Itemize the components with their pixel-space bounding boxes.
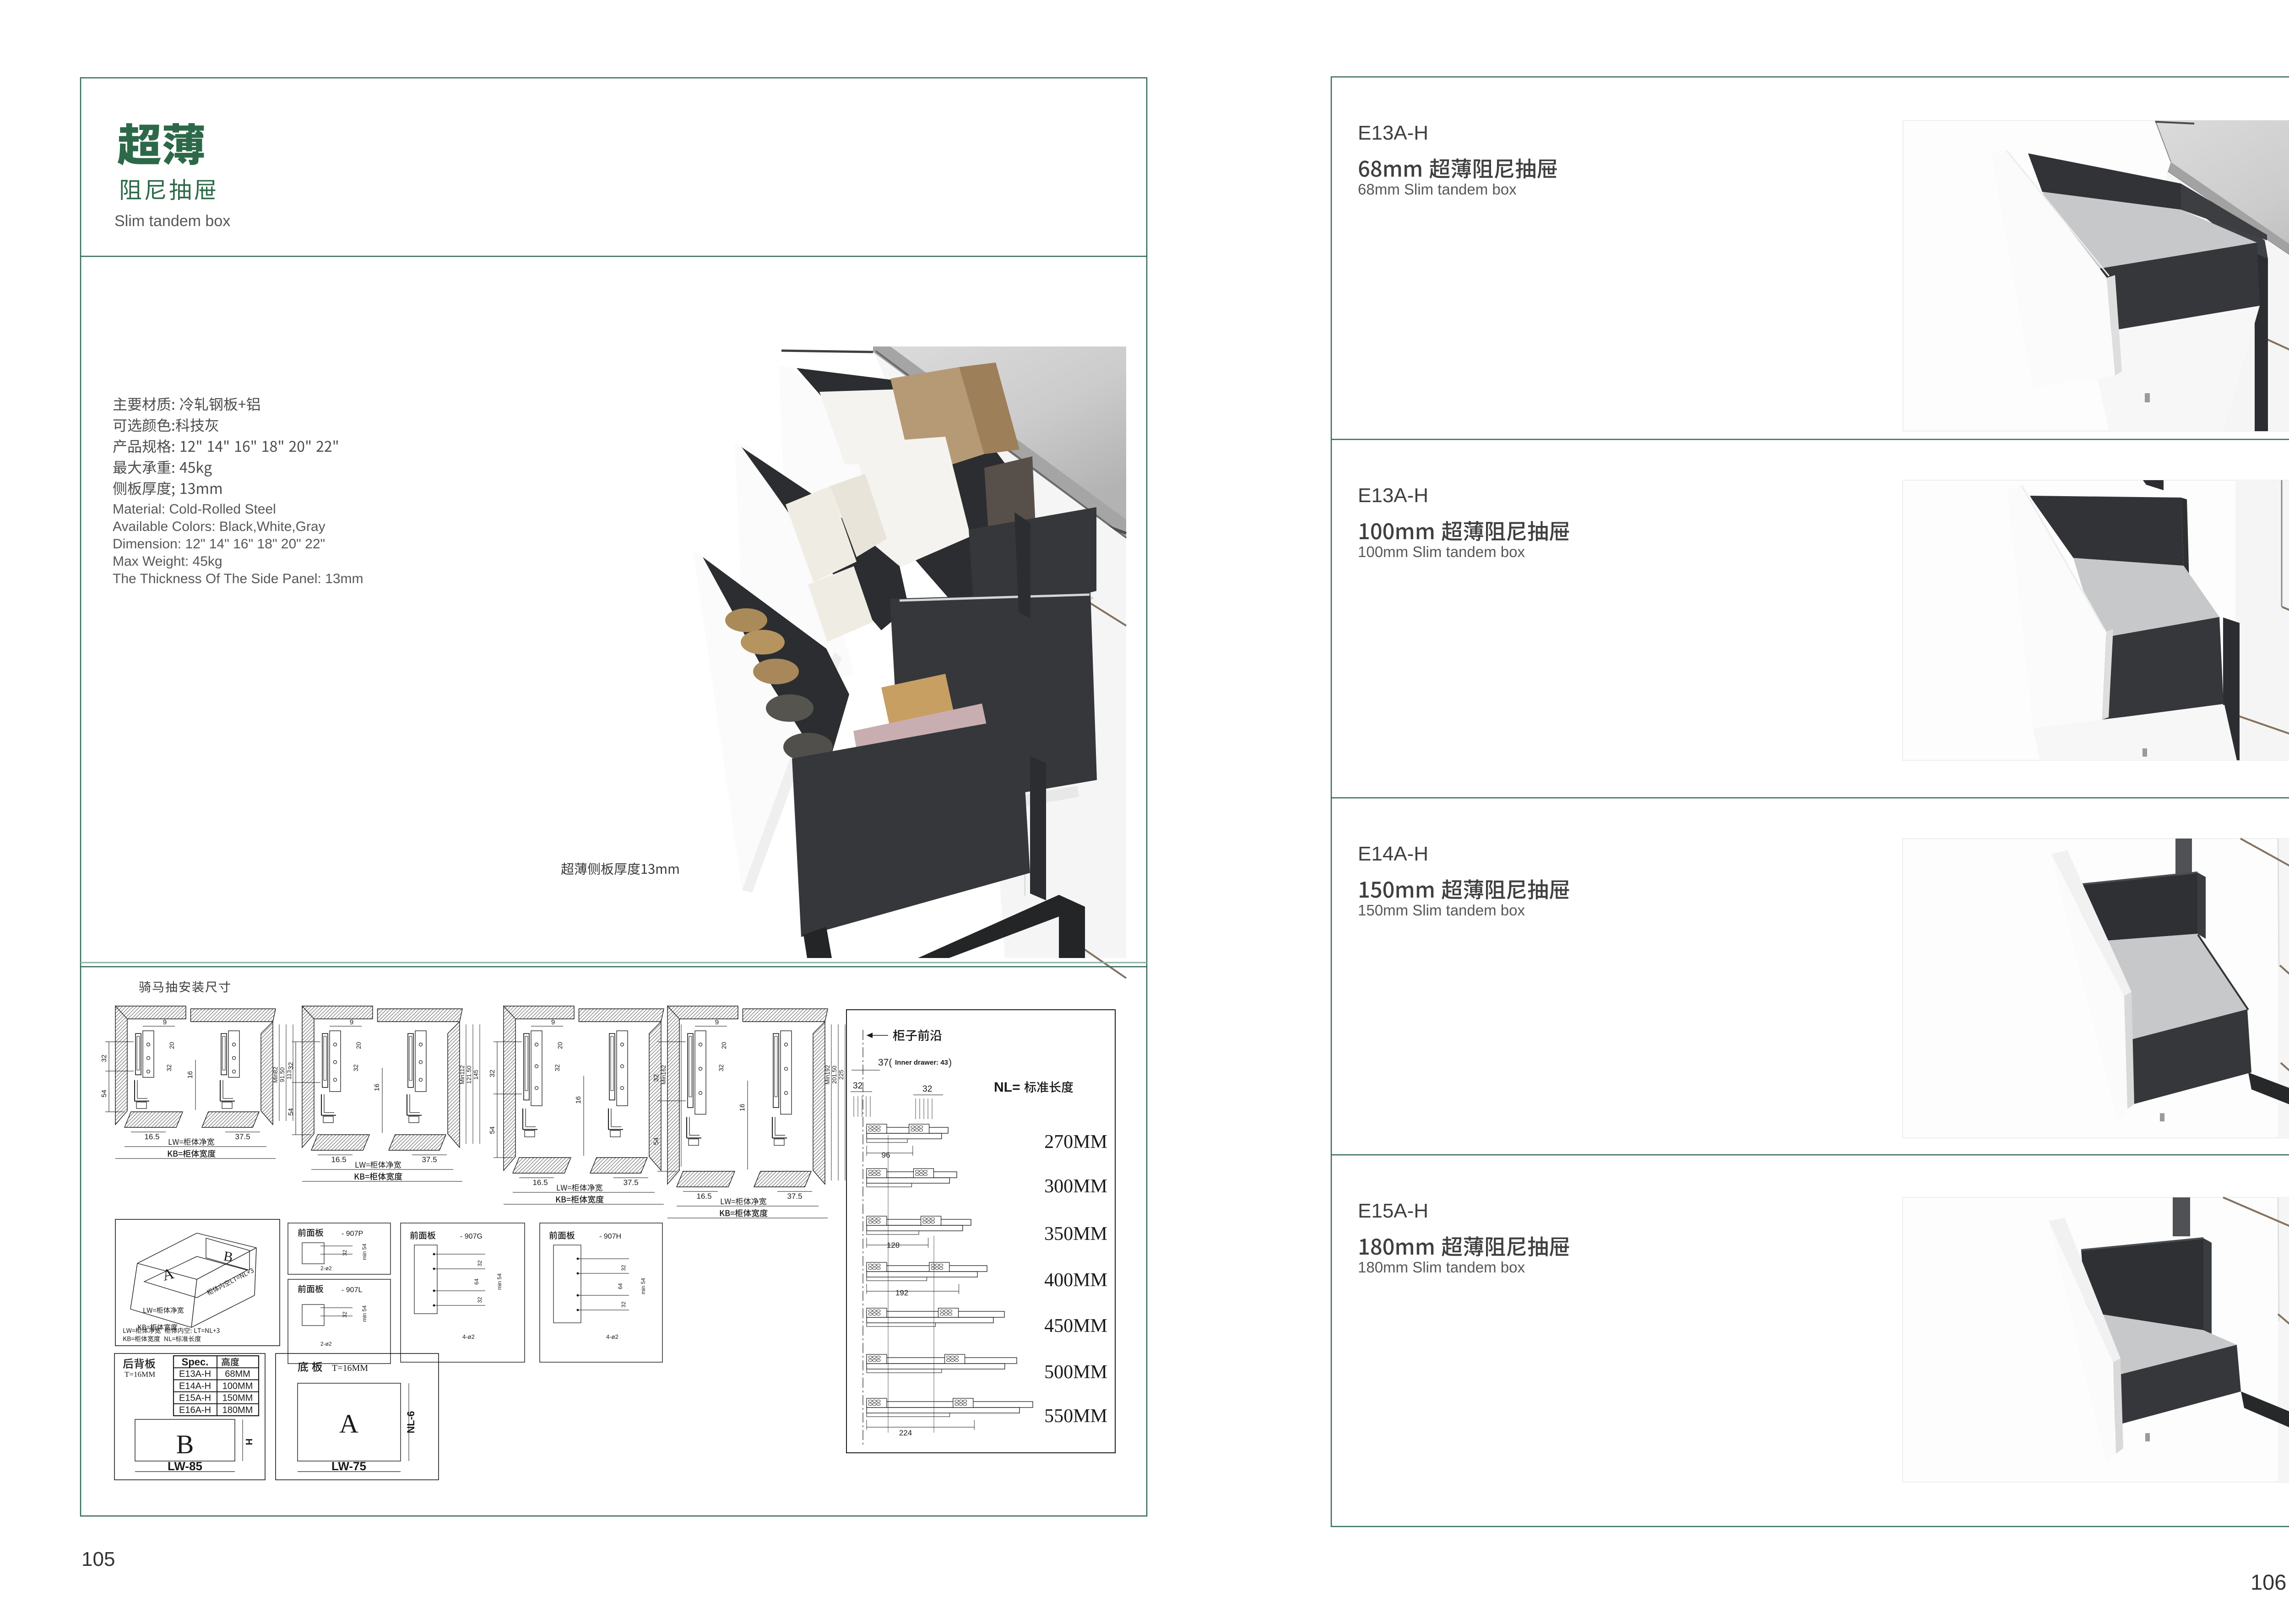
svg-text:145: 145 xyxy=(472,1070,479,1080)
svg-text:T=16MM: T=16MM xyxy=(125,1370,155,1379)
svg-text:16.5: 16.5 xyxy=(532,1178,548,1187)
svg-text:16: 16 xyxy=(738,1104,746,1111)
svg-text:32: 32 xyxy=(100,1055,108,1062)
svg-text:E13A-H: E13A-H xyxy=(179,1369,211,1379)
svg-text:32: 32 xyxy=(477,1297,483,1303)
svg-text:128: 128 xyxy=(887,1241,900,1250)
svg-text:121.50: 121.50 xyxy=(466,1066,472,1084)
svg-text:9: 9 xyxy=(163,1018,167,1026)
svg-text:270MM: 270MM xyxy=(1044,1131,1107,1153)
svg-text:96: 96 xyxy=(882,1151,890,1159)
svg-text:37.5: 37.5 xyxy=(235,1132,250,1141)
svg-text:E16A-H: E16A-H xyxy=(179,1405,211,1415)
svg-text:32: 32 xyxy=(553,1064,561,1072)
svg-text:E13A-H: E13A-H xyxy=(1358,122,1428,144)
svg-text:100mm Slim tandem box: 100mm Slim tandem box xyxy=(1358,543,1525,560)
svg-text:32: 32 xyxy=(652,1074,660,1082)
svg-text:32: 32 xyxy=(352,1064,359,1072)
svg-text:16: 16 xyxy=(575,1096,582,1104)
svg-text:32: 32 xyxy=(922,1084,932,1094)
svg-text:4-ø2: 4-ø2 xyxy=(462,1333,475,1340)
svg-text:Spec.: Spec. xyxy=(182,1356,209,1368)
svg-text:2-ø2: 2-ø2 xyxy=(320,1341,332,1347)
svg-text:64: 64 xyxy=(617,1283,624,1289)
svg-text:192: 192 xyxy=(895,1288,908,1297)
svg-text:- 907G: - 907G xyxy=(460,1233,483,1240)
svg-text:180mm Slim tandem box: 180mm Slim tandem box xyxy=(1358,1259,1525,1276)
svg-text:Material: Cold-Rolled Steel: Material: Cold-Rolled Steel xyxy=(113,502,276,517)
svg-text:54: 54 xyxy=(652,1137,660,1145)
svg-text:20: 20 xyxy=(720,1042,727,1049)
svg-text:): ) xyxy=(949,1057,952,1068)
svg-text:150MM: 150MM xyxy=(222,1393,253,1403)
svg-text:64: 64 xyxy=(473,1278,480,1285)
svg-text:100MM: 100MM xyxy=(222,1381,253,1391)
svg-text:- 907P: - 907P xyxy=(342,1230,363,1238)
svg-text:224: 224 xyxy=(899,1429,912,1437)
svg-text:E14A-H: E14A-H xyxy=(179,1381,211,1391)
svg-text:The Thickness Of The Side Pane: The Thickness Of The Side Panel: 13mm xyxy=(113,571,363,586)
svg-text:H: H xyxy=(244,1439,254,1445)
svg-text:32: 32 xyxy=(853,1081,862,1091)
svg-text:32: 32 xyxy=(342,1250,348,1256)
svg-text:32: 32 xyxy=(717,1064,725,1072)
svg-text:E15A-H: E15A-H xyxy=(179,1393,211,1403)
svg-text:180MM: 180MM xyxy=(222,1405,253,1415)
svg-text:Dimension: 12" 14" 16" 18" 20": Dimension: 12" 14" 16" 18" 20" 22" xyxy=(113,536,325,552)
svg-text:68MM: 68MM xyxy=(225,1369,250,1379)
svg-text:37.5: 37.5 xyxy=(422,1155,437,1164)
svg-text:Min112: Min112 xyxy=(459,1065,466,1084)
svg-text:37.5: 37.5 xyxy=(623,1178,638,1187)
svg-text:20: 20 xyxy=(556,1042,564,1049)
svg-text:350MM: 350MM xyxy=(1044,1223,1107,1245)
svg-text:16.5: 16.5 xyxy=(331,1155,346,1164)
svg-text:Slim tandem box: Slim tandem box xyxy=(114,212,230,230)
svg-text:2-ø2: 2-ø2 xyxy=(320,1265,332,1272)
svg-text:E13A-H: E13A-H xyxy=(1358,484,1428,507)
svg-text:54: 54 xyxy=(488,1126,496,1134)
svg-text:min 54: min 54 xyxy=(361,1244,368,1260)
svg-text:16: 16 xyxy=(186,1071,194,1079)
svg-text:16.5: 16.5 xyxy=(696,1192,711,1201)
svg-text:E14A-H: E14A-H xyxy=(1358,843,1428,865)
svg-text:9: 9 xyxy=(551,1018,555,1026)
svg-text:B: B xyxy=(222,1249,234,1265)
svg-text:225: 225 xyxy=(838,1070,845,1080)
svg-text:B: B xyxy=(176,1429,194,1459)
svg-text:LW-75: LW-75 xyxy=(331,1459,366,1473)
svg-text:500MM: 500MM xyxy=(1044,1362,1107,1383)
svg-text:16: 16 xyxy=(373,1083,381,1091)
svg-text:16.5: 16.5 xyxy=(144,1132,159,1141)
svg-text:32: 32 xyxy=(287,1062,295,1070)
svg-text:- 907L: - 907L xyxy=(342,1286,362,1294)
svg-text:201.50: 201.50 xyxy=(831,1066,838,1084)
svg-text:550MM: 550MM xyxy=(1044,1406,1107,1427)
svg-text:Max Weight: 45kg: Max Weight: 45kg xyxy=(113,554,222,569)
svg-text:T=16MM: T=16MM xyxy=(332,1363,368,1373)
svg-text:A: A xyxy=(161,1265,176,1284)
svg-text:68mm Slim tandem box: 68mm Slim tandem box xyxy=(1358,181,1517,198)
svg-text:32: 32 xyxy=(620,1301,627,1308)
svg-text:Inner drawer: 43: Inner drawer: 43 xyxy=(895,1059,948,1066)
svg-text:NL-6: NL-6 xyxy=(405,1411,417,1434)
svg-text:NL=: NL= xyxy=(994,1080,1020,1095)
svg-text:9: 9 xyxy=(715,1018,719,1026)
svg-text:54: 54 xyxy=(287,1108,295,1116)
svg-text:105: 105 xyxy=(81,1548,115,1570)
svg-text:32: 32 xyxy=(620,1265,627,1271)
svg-text:91.50: 91.50 xyxy=(279,1067,286,1083)
svg-text:300MM: 300MM xyxy=(1044,1176,1107,1197)
svg-text:LW-85: LW-85 xyxy=(168,1459,202,1473)
svg-text:20: 20 xyxy=(168,1042,175,1049)
svg-text:54: 54 xyxy=(100,1090,108,1098)
svg-text:32: 32 xyxy=(477,1260,483,1267)
svg-text:450MM: 450MM xyxy=(1044,1315,1107,1337)
svg-text:113: 113 xyxy=(286,1070,293,1080)
svg-text:37(: 37( xyxy=(878,1057,892,1068)
svg-text:150mm Slim tandem box: 150mm Slim tandem box xyxy=(1358,902,1525,919)
svg-text:106: 106 xyxy=(2251,1570,2286,1594)
svg-text:20: 20 xyxy=(355,1042,362,1049)
svg-text:min 54: min 54 xyxy=(361,1305,368,1322)
svg-text:32: 32 xyxy=(488,1070,496,1077)
svg-text:32: 32 xyxy=(342,1311,348,1318)
svg-text:E15A-H: E15A-H xyxy=(1358,1200,1428,1222)
svg-text:9: 9 xyxy=(350,1018,353,1026)
svg-text:37.5: 37.5 xyxy=(787,1192,802,1201)
svg-text:min 54: min 54 xyxy=(640,1278,646,1294)
svg-text:4-ø2: 4-ø2 xyxy=(606,1333,618,1340)
svg-text:400MM: 400MM xyxy=(1044,1270,1107,1291)
svg-text:32: 32 xyxy=(165,1064,173,1072)
svg-text:min 54: min 54 xyxy=(496,1273,503,1290)
svg-text:Min192: Min192 xyxy=(824,1065,831,1085)
svg-text:Min82: Min82 xyxy=(272,1066,279,1083)
svg-text:Available Colors: Black,White,: Available Colors: Black,White,Gray xyxy=(113,519,325,534)
svg-text:A: A xyxy=(339,1409,358,1439)
svg-text:- 907H: - 907H xyxy=(599,1233,621,1240)
